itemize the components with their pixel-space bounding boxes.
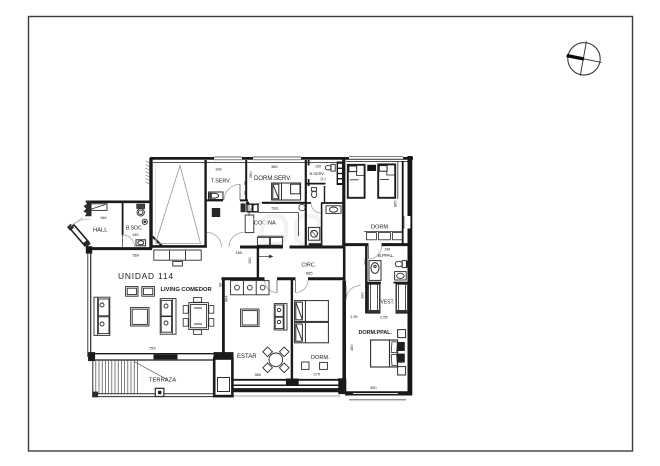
svg-text:198: 198 — [215, 167, 222, 172]
svg-text:150: 150 — [247, 257, 252, 264]
svg-text:300: 300 — [368, 166, 375, 171]
svg-text:DORM.PPAL.: DORM.PPAL. — [359, 330, 393, 336]
svg-text:COCINA: COCINA — [254, 221, 276, 227]
svg-text:964: 964 — [224, 295, 229, 302]
svg-text:DORM.: DORM. — [311, 355, 330, 361]
svg-text:759: 759 — [149, 346, 156, 351]
svg-text:LIVING COMEDOR: LIVING COMEDOR — [161, 287, 213, 293]
svg-text:865: 865 — [393, 201, 398, 208]
svg-text:203: 203 — [363, 259, 368, 266]
svg-text:350: 350 — [370, 385, 377, 390]
svg-text:CIRC.: CIRC. — [302, 263, 317, 269]
svg-text:T.SERV.: T.SERV. — [211, 179, 231, 185]
svg-text:DORM.SERV.: DORM.SERV. — [254, 176, 292, 182]
svg-text:460: 460 — [349, 344, 354, 351]
svg-text:185: 185 — [236, 250, 243, 255]
svg-text:569: 569 — [133, 253, 140, 258]
svg-text:1.95: 1.95 — [350, 314, 358, 319]
svg-text:385: 385 — [271, 164, 278, 169]
svg-text:ESTAR: ESTAR — [237, 354, 257, 360]
svg-text:DORM.: DORM. — [371, 225, 390, 231]
svg-text:360: 360 — [255, 372, 262, 377]
svg-text:533: 533 — [272, 206, 279, 211]
svg-text:UNIDAD 114: UNIDAD 114 — [118, 271, 174, 281]
svg-text:260: 260 — [248, 171, 253, 178]
svg-text:HALL: HALL — [93, 228, 108, 234]
svg-text:270: 270 — [314, 372, 321, 377]
svg-text:(2.): (2.) — [321, 177, 326, 181]
svg-text:B.SOC.: B.SOC. — [126, 226, 143, 232]
svg-text:145: 145 — [132, 232, 139, 237]
svg-text:B.PPAL.: B.PPAL. — [378, 253, 394, 258]
svg-text:VEST.: VEST. — [381, 300, 395, 306]
svg-text:249: 249 — [385, 248, 391, 252]
svg-text:685: 685 — [306, 271, 313, 276]
svg-text:150: 150 — [315, 165, 321, 169]
svg-text:100: 100 — [360, 292, 365, 299]
svg-text:B.SERV.: B.SERV. — [310, 171, 325, 176]
svg-text:166: 166 — [100, 215, 107, 220]
svg-text:TERRAZA: TERRAZA — [149, 378, 176, 384]
svg-text:2.05: 2.05 — [380, 315, 388, 320]
